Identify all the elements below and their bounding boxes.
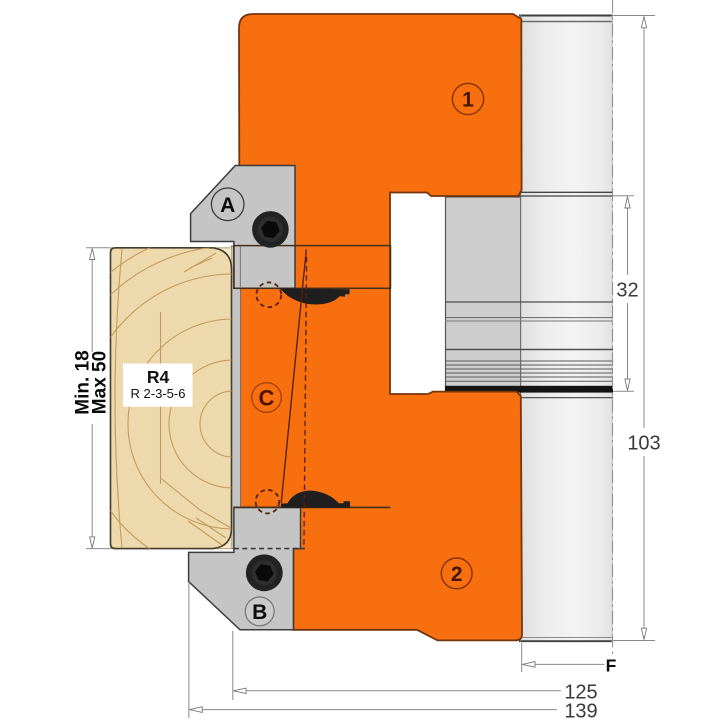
svg-text:C: C	[259, 385, 275, 410]
svg-text:R4: R4	[147, 367, 170, 387]
svg-text:1: 1	[462, 89, 474, 112]
svg-text:Max 50: Max 50	[90, 351, 111, 414]
svg-text:32: 32	[616, 280, 638, 302]
svg-text:103: 103	[627, 433, 660, 455]
svg-text:A: A	[220, 194, 235, 217]
svg-text:B: B	[252, 601, 267, 624]
svg-text:139: 139	[564, 700, 597, 722]
svg-text:F: F	[606, 656, 617, 676]
svg-text:2: 2	[451, 563, 463, 586]
svg-text:R 2-3-5-6: R 2-3-5-6	[131, 386, 186, 401]
